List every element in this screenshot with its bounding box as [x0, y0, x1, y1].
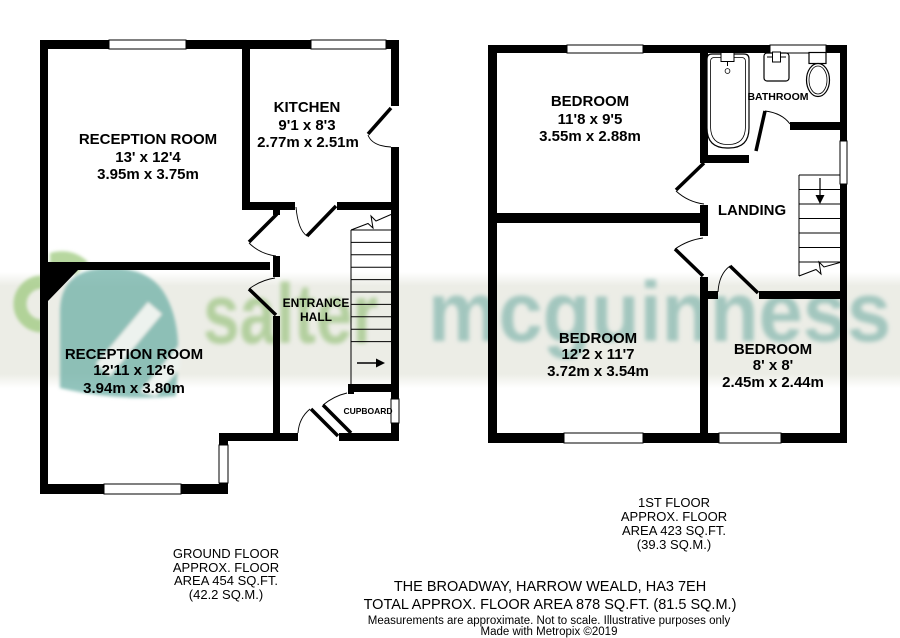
svg-text:CUPBOARD: CUPBOARD: [343, 406, 392, 416]
svg-text:2.45m x 2.44m: 2.45m x 2.44m: [722, 374, 824, 391]
svg-text:1ST FLOOR: 1ST FLOOR: [638, 495, 710, 510]
svg-text:TOTAL APPROX. FLOOR AREA 878 S: TOTAL APPROX. FLOOR AREA 878 SQ.FT. (81.…: [364, 597, 737, 613]
svg-text:3.72m x 3.54m: 3.72m x 3.54m: [547, 363, 649, 380]
svg-text:BEDROOM: BEDROOM: [551, 93, 629, 110]
svg-text:Made with Metropix ©2019: Made with Metropix ©2019: [481, 626, 618, 638]
svg-text:THE BROADWAY, HARROW WEALD, HA: THE BROADWAY, HARROW WEALD, HA3 7EH: [394, 579, 706, 595]
svg-text:8' x 8': 8' x 8': [753, 357, 794, 374]
svg-text:salter: salter: [203, 267, 378, 361]
svg-text:3.55m x 2.88m: 3.55m x 2.88m: [539, 128, 641, 145]
svg-text:AREA 454 SQ.FT.: AREA 454 SQ.FT.: [174, 573, 278, 588]
svg-text:3.94m x 3.80m: 3.94m x 3.80m: [83, 380, 185, 397]
svg-text:12'11 x 12'6: 12'11 x 12'6: [93, 362, 174, 379]
svg-text:9'1 x 8'3: 9'1 x 8'3: [278, 117, 335, 134]
svg-text:APPROX. FLOOR: APPROX. FLOOR: [621, 509, 727, 524]
svg-text:RECEPTION ROOM: RECEPTION ROOM: [65, 346, 203, 363]
svg-text:KITCHEN: KITCHEN: [274, 99, 341, 116]
svg-text:BEDROOM: BEDROOM: [734, 341, 812, 358]
svg-text:RECEPTION ROOM: RECEPTION ROOM: [79, 131, 217, 148]
svg-text:LANDING: LANDING: [718, 202, 786, 219]
svg-text:2.77m x 2.51m: 2.77m x 2.51m: [257, 134, 359, 151]
svg-text:(39.3 SQ.M.): (39.3 SQ.M.): [637, 537, 711, 552]
svg-text:(42.2 SQ.M.): (42.2 SQ.M.): [189, 587, 263, 602]
svg-text:13' x 12'4: 13' x 12'4: [115, 149, 181, 166]
svg-text:BEDROOM: BEDROOM: [559, 330, 637, 347]
svg-text:HALL: HALL: [300, 310, 332, 324]
svg-text:mcguinness: mcguinness: [428, 265, 891, 359]
svg-text:AREA 423 SQ.FT.: AREA 423 SQ.FT.: [622, 523, 726, 538]
svg-text:12'2 x 11'7: 12'2 x 11'7: [561, 346, 634, 363]
svg-text:11'8 x 9'5: 11'8 x 9'5: [558, 111, 623, 128]
svg-text:BATHROOM: BATHROOM: [747, 91, 808, 103]
svg-text:ENTRANCE: ENTRANCE: [283, 296, 350, 310]
svg-text:GROUND FLOOR: GROUND FLOOR: [173, 546, 279, 561]
svg-text:3.95m x 3.75m: 3.95m x 3.75m: [97, 166, 199, 183]
